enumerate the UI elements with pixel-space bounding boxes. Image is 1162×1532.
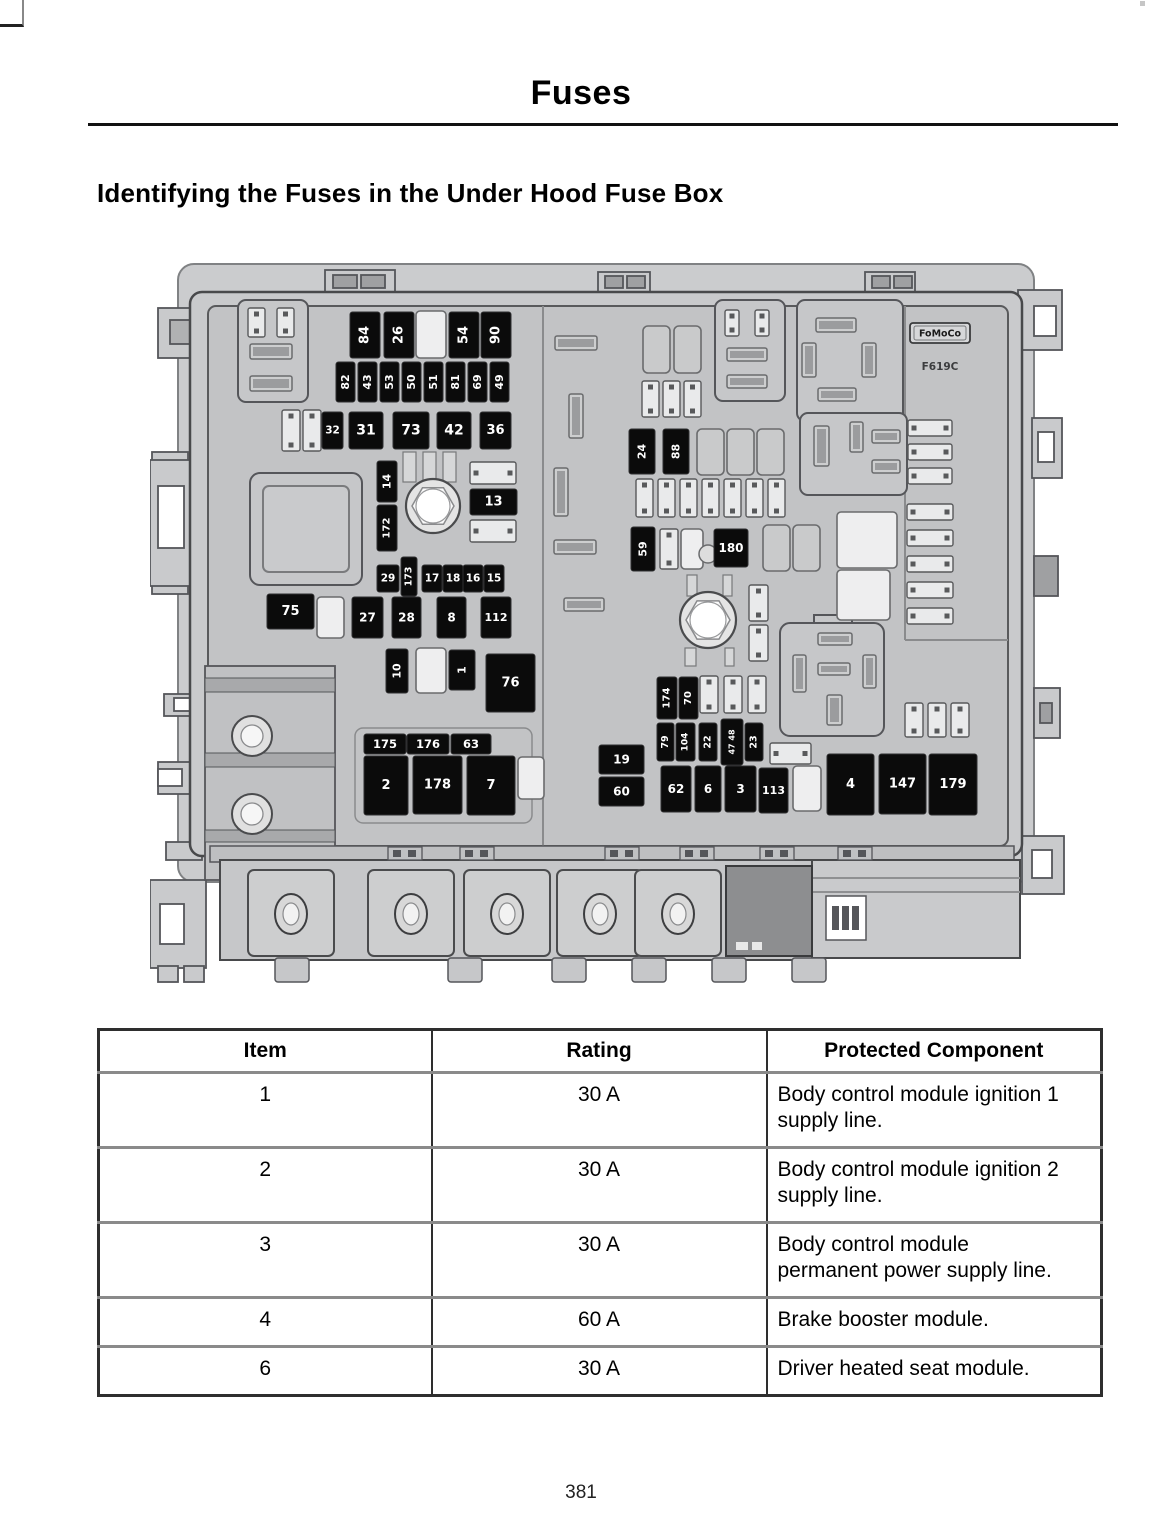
table-row: 230 ABody control module ignition 2 supp… xyxy=(99,1148,1102,1223)
fuse-label: 176 xyxy=(416,737,440,751)
fuse-label: 73 xyxy=(401,423,420,439)
component-cell: Body control module ignition 1 supply li… xyxy=(767,1073,1102,1148)
component-cell: Brake booster module. xyxy=(767,1298,1102,1347)
fuse-label: 47 48 xyxy=(728,729,737,754)
item-cell: 1 xyxy=(99,1073,432,1148)
item-cell: 2 xyxy=(99,1148,432,1223)
fuse-label: 75 xyxy=(281,604,299,619)
fuse-28: 28 xyxy=(392,597,421,638)
fuse-label: 28 xyxy=(398,611,415,625)
fuse-180: 180 xyxy=(714,529,748,567)
table-row: 460 ABrake booster module. xyxy=(99,1298,1102,1347)
page-number: 381 xyxy=(0,1482,1162,1504)
fuse-label: 112 xyxy=(485,611,508,624)
fuse-53: 53 xyxy=(380,362,399,402)
fuse-7: 7 xyxy=(467,756,515,815)
fuse-32: 32 xyxy=(322,412,343,449)
fuse-label: 24 xyxy=(636,444,649,460)
fuse-label: 15 xyxy=(487,573,502,585)
rating-cell: 30 A xyxy=(432,1347,767,1396)
table-row: 130 ABody control module ignition 1 supp… xyxy=(99,1073,1102,1148)
fuse-36: 36 xyxy=(480,412,511,449)
fuse-label: 42 xyxy=(444,423,463,439)
fuse-90: 90 xyxy=(481,312,511,358)
fuse-29: 29 xyxy=(377,565,399,592)
fuse-label: 36 xyxy=(486,423,504,438)
fuse-14: 14 xyxy=(377,461,397,502)
fuse-label: 22 xyxy=(703,735,714,748)
fuse-13: 13 xyxy=(470,489,517,515)
table-row: 330 ABody control module permanent power… xyxy=(99,1223,1102,1298)
fuse-label: 175 xyxy=(373,737,397,751)
fuse-54: 54 xyxy=(449,312,479,358)
fuse-63: 63 xyxy=(451,734,491,754)
fuse-label: 174 xyxy=(662,688,673,709)
fuse-70: 70 xyxy=(679,677,698,719)
fuse-81: 81 xyxy=(446,362,465,402)
fuse-174: 174 xyxy=(657,677,677,719)
fuse-label: 17 xyxy=(425,573,440,585)
page-title: Fuses xyxy=(0,74,1162,113)
fuse-label: 43 xyxy=(361,374,374,389)
fuse-2: 2 xyxy=(364,756,408,815)
fuse-73: 73 xyxy=(393,412,429,449)
fuse-51: 51 xyxy=(424,362,443,402)
fuse-112: 112 xyxy=(481,597,511,638)
rating-cell: 30 A xyxy=(432,1148,767,1223)
fuse-label: 50 xyxy=(405,374,418,390)
fuse-label: 16 xyxy=(466,573,481,585)
fuse-label: 6 xyxy=(704,782,712,796)
fuse-176: 176 xyxy=(407,734,449,754)
fuse-label: 54 xyxy=(457,326,472,344)
fuse-8: 8 xyxy=(437,597,466,638)
fuse-82: 82 xyxy=(336,362,355,402)
fuse-60: 60 xyxy=(599,777,644,806)
page-corner-artifact xyxy=(0,0,24,27)
fuse-62: 62 xyxy=(661,766,691,812)
fuse-label: 70 xyxy=(683,691,694,705)
rating-cell: 30 A xyxy=(432,1223,767,1298)
fuse-19: 19 xyxy=(599,745,644,774)
fuse-label: 10 xyxy=(391,663,404,679)
component-cell: Body control module permanent power supp… xyxy=(767,1223,1102,1298)
fuse-49: 49 xyxy=(490,362,509,402)
fuse-label: 59 xyxy=(637,541,650,556)
fuse-27: 27 xyxy=(352,597,383,638)
rating-cell: 60 A xyxy=(432,1298,767,1347)
fuse-label: 173 xyxy=(404,567,415,587)
fuse-label: 79 xyxy=(660,735,671,748)
fuse-label: 18 xyxy=(446,573,461,585)
fuse-172: 172 xyxy=(377,505,397,551)
fuse-label: 84 xyxy=(358,326,373,344)
fuse-label: 53 xyxy=(383,374,396,389)
fuse-label: 31 xyxy=(356,423,375,439)
fuse-label: 82 xyxy=(339,374,352,389)
fuse-88: 88 xyxy=(663,429,689,474)
fuse-label: 32 xyxy=(325,425,340,437)
part-code-label: F619C xyxy=(922,361,959,373)
fuse-10: 10 xyxy=(386,649,408,693)
fuse-label: 26 xyxy=(392,326,407,344)
fuse-59: 59 xyxy=(631,527,655,571)
fuse-label: 4 xyxy=(846,777,855,792)
fuse-75: 75 xyxy=(267,594,314,629)
fuse-17: 17 xyxy=(422,565,442,592)
fuse-79: 79 xyxy=(657,723,674,761)
fuse-18: 18 xyxy=(443,565,463,592)
header-protected-component: Protected Component xyxy=(767,1030,1102,1073)
fuse-47-48: 47 48 xyxy=(721,719,743,765)
fuse-4: 4 xyxy=(827,754,874,815)
fuse-label: 81 xyxy=(449,374,462,389)
fuse-label: 8 xyxy=(447,611,455,625)
fuse-84: 84 xyxy=(350,312,380,358)
fuse-label: 179 xyxy=(939,777,966,792)
fuse-label: 29 xyxy=(381,573,396,585)
fuse-69: 69 xyxy=(468,362,487,402)
fuse-50: 50 xyxy=(402,362,421,402)
fuse-76: 76 xyxy=(486,654,535,712)
fuse-175: 175 xyxy=(364,734,406,754)
fuse-label: 180 xyxy=(718,541,743,555)
fuse-24: 24 xyxy=(629,429,655,474)
fuse-22: 22 xyxy=(699,723,717,761)
fuse-43: 43 xyxy=(358,362,377,402)
fuse-label: 147 xyxy=(889,777,916,792)
fuse-label: 69 xyxy=(471,374,484,389)
fuse-label: 88 xyxy=(670,444,683,459)
header-rating: Rating xyxy=(432,1030,767,1073)
fuse-label: 14 xyxy=(381,474,394,490)
component-cell: Body control module ignition 2 supply li… xyxy=(767,1148,1102,1223)
fuse-box-diagram: 8426549082435350518169493231734236141721… xyxy=(150,248,1070,988)
fuse-label: 7 xyxy=(486,778,495,793)
fuse-table: Item Rating Protected Component 130 ABod… xyxy=(97,1028,1103,1397)
fuse-label: 27 xyxy=(359,611,376,625)
fuse-label: 172 xyxy=(382,518,393,539)
fuse-173: 173 xyxy=(401,557,417,596)
fuse-label: 90 xyxy=(489,326,504,344)
fuse-label: 1 xyxy=(456,666,469,674)
fuse-label: 60 xyxy=(613,785,630,799)
fuse-label: 76 xyxy=(501,676,519,691)
section-heading: Identifying the Fuses in the Under Hood … xyxy=(97,178,723,209)
fuse-label: 19 xyxy=(613,753,630,767)
fuse-box-svg: 8426549082435350518169493231734236141721… xyxy=(150,248,1070,988)
fuse-label: 113 xyxy=(762,784,785,797)
fuse-label: 3 xyxy=(736,782,744,796)
item-cell: 4 xyxy=(99,1298,432,1347)
fuse-6: 6 xyxy=(695,766,721,812)
manual-page: Fuses Identifying the Fuses in the Under… xyxy=(0,0,1162,1532)
fuse-15: 15 xyxy=(484,565,504,592)
fuse-label: 104 xyxy=(681,733,691,752)
fuse-label: 49 xyxy=(493,374,506,389)
title-rule xyxy=(88,123,1118,126)
table-row: 630 ADriver heated seat module. xyxy=(99,1347,1102,1396)
scan-speck xyxy=(1140,1,1145,6)
rating-cell: 30 A xyxy=(432,1073,767,1148)
item-cell: 3 xyxy=(99,1223,432,1298)
fuse-147: 147 xyxy=(879,754,926,814)
fuse-label: 63 xyxy=(463,737,479,751)
fuse-3: 3 xyxy=(725,766,756,812)
fuse-label: 178 xyxy=(424,778,451,793)
fuse-label: 23 xyxy=(749,735,760,748)
fomoco-label: FoMoCo xyxy=(919,329,962,340)
fuse-1: 1 xyxy=(449,650,475,690)
item-cell: 6 xyxy=(99,1347,432,1396)
fuse-113: 113 xyxy=(759,768,788,813)
fuse-label: 51 xyxy=(427,374,440,389)
header-item: Item xyxy=(99,1030,432,1073)
fuse-23: 23 xyxy=(745,723,763,761)
fuse-label: 62 xyxy=(668,782,685,796)
fuse-26: 26 xyxy=(384,312,414,358)
table-header-row: Item Rating Protected Component xyxy=(99,1030,1102,1073)
fuse-label: 13 xyxy=(484,495,502,510)
fuse-104: 104 xyxy=(676,723,695,761)
fuse-31: 31 xyxy=(349,412,383,449)
fuse-178: 178 xyxy=(413,756,462,814)
component-cell: Driver heated seat module. xyxy=(767,1347,1102,1396)
fuse-42: 42 xyxy=(437,412,471,449)
fuse-label: 2 xyxy=(381,778,390,793)
fuse-16: 16 xyxy=(463,565,483,592)
fuse-179: 179 xyxy=(929,754,977,815)
